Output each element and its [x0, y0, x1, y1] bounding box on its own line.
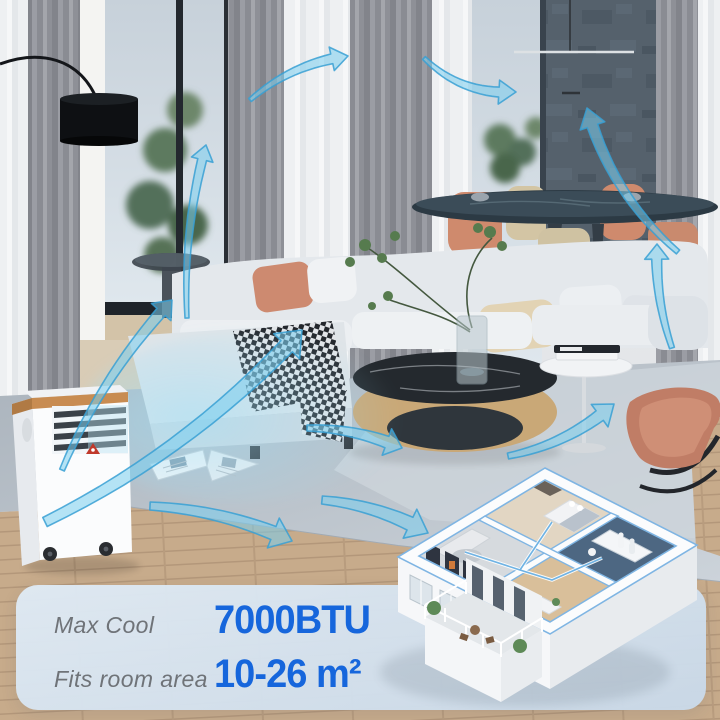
spec-value-area: 10-26 m²	[214, 652, 361, 697]
pillow-salmon	[251, 260, 315, 314]
apartment-floorplan	[370, 440, 720, 720]
balcony-plant	[427, 601, 441, 615]
spec-label-room-area: Fits room area	[54, 666, 214, 693]
side-handle	[22, 418, 32, 442]
bistro-table	[470, 625, 480, 635]
product-infographic: Max Cool 7000BTU Fits room area 10-26 m²	[0, 0, 720, 720]
spec-label-max-cool: Max Cool	[54, 612, 214, 639]
spec-value-btu: 7000BTU	[214, 598, 370, 643]
